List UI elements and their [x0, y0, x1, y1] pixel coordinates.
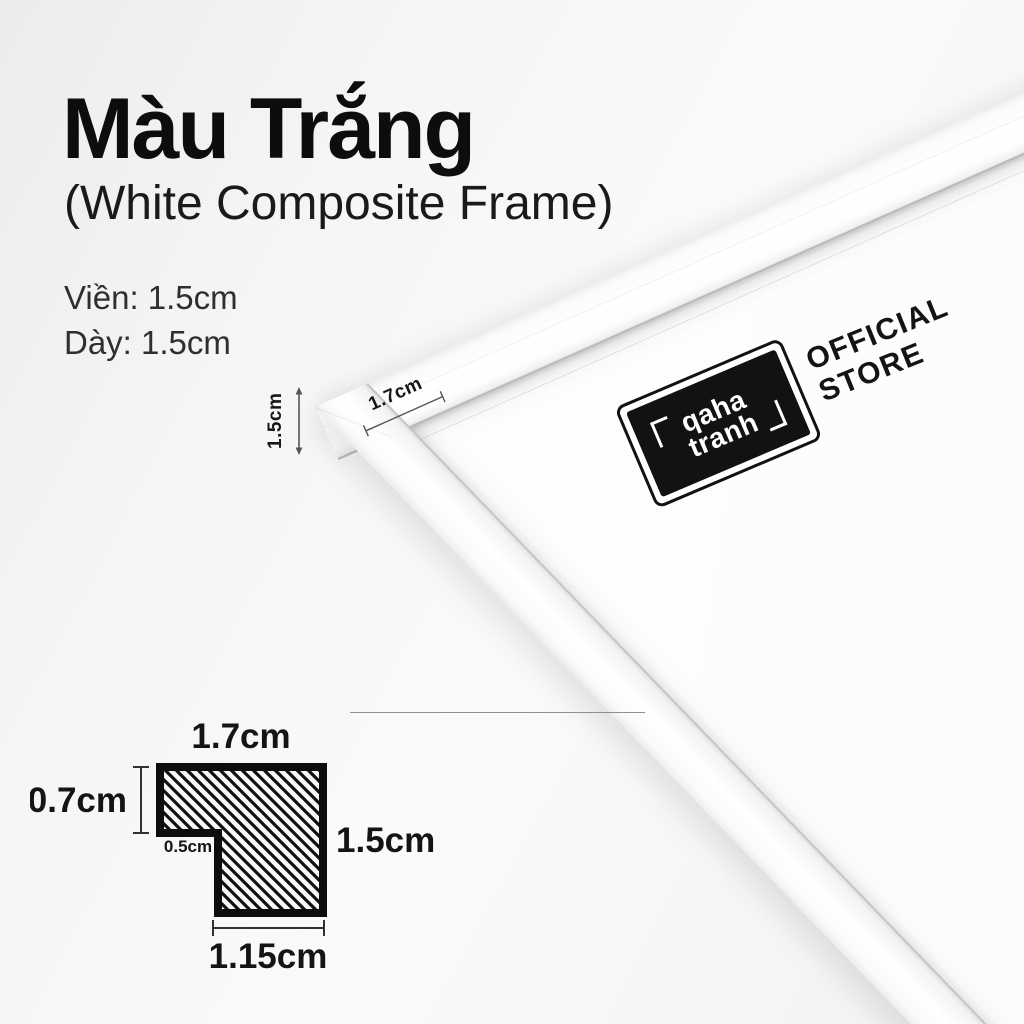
product-spec-image: qaha tranh OFFICIAL STORE Màu Trắng (Whi… — [0, 0, 1024, 1024]
corner-height-label: 1.5cm — [262, 386, 290, 456]
corner-height-arrow-icon — [292, 386, 306, 456]
spec-lines: Viền: 1.5cm Dày: 1.5cm — [64, 276, 238, 366]
bottom-dimline-icon — [213, 920, 324, 936]
brand-name: qaha tranh — [675, 385, 762, 461]
xsec-right-label: 1.5cm — [336, 821, 435, 860]
page-subtitle: (White Composite Frame) — [64, 178, 613, 231]
spec-thickness: Dày: 1.5cm — [64, 321, 238, 366]
xsec-left-label: 0.7cm — [30, 781, 127, 820]
spec-border: Viền: 1.5cm — [64, 276, 238, 321]
left-dimline-icon — [133, 767, 149, 833]
xsec-step-label: 0.5cm — [164, 837, 212, 856]
page-title: Màu Trắng — [62, 84, 613, 174]
xsec-bottom-label: 1.15cm — [209, 937, 328, 976]
xsec-top-label: 1.7cm — [191, 717, 290, 756]
cross-section-diagram: 1.7cm 0.7cm 0.5cm 1.5cm 1.15cm — [30, 700, 450, 990]
title-block: Màu Trắng (White Composite Frame) — [62, 84, 613, 231]
frame-corner-bracket-left-icon — [650, 416, 677, 448]
frame-corner-bracket-right-icon — [760, 399, 787, 431]
